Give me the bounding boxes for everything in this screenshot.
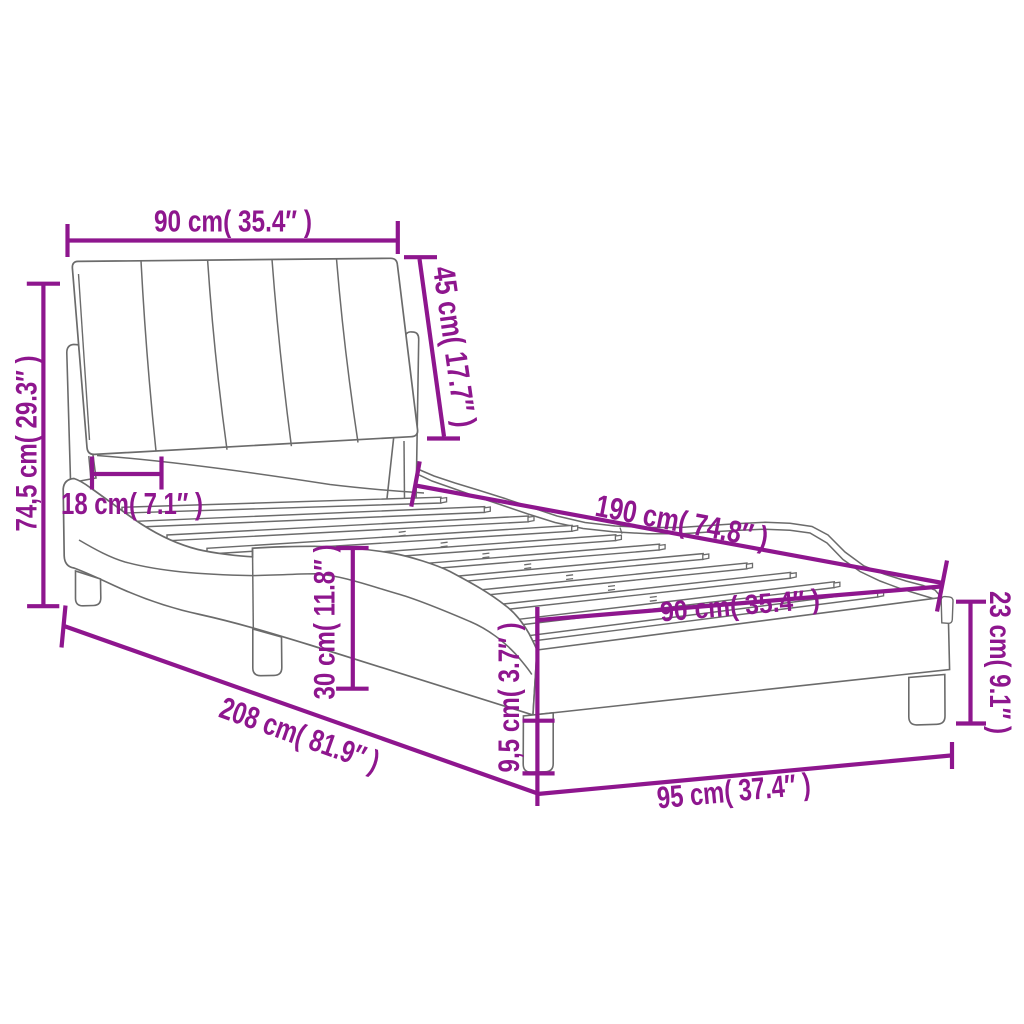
svg-text:74,5 cm( 29.3″ ): 74,5 cm( 29.3″ ) (11, 356, 44, 532)
svg-text:9,5 cm( 3.7″ ): 9,5 cm( 3.7″ ) (493, 623, 526, 773)
svg-text:30 cm( 11.8″ ): 30 cm( 11.8″ ) (309, 545, 342, 700)
svg-text:18 cm( 7.1″ ): 18 cm( 7.1″ ) (61, 486, 203, 521)
svg-text:23 cm( 9.1″ ): 23 cm( 9.1″ ) (983, 591, 1016, 734)
svg-text:90 cm( 35.4″ ): 90 cm( 35.4″ ) (154, 203, 312, 238)
